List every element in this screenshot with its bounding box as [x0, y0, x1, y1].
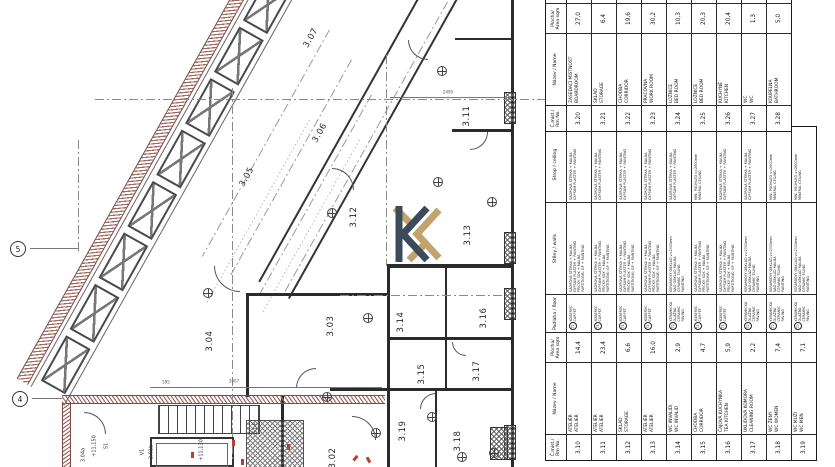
cell-floor: T1KOBEREC CARPET — [641, 294, 666, 332]
room-schedule-table-310-319: Č.míst./ Rm No.Název / NamePlocha/ Area … — [545, 126, 817, 461]
cell-sliver — [716, 0, 741, 3]
grid-axis-bubble-5: 5 — [10, 241, 26, 257]
cell-ceil: MIN. PODHLED v=2600mm MINERAL CEILING — [791, 127, 816, 202]
schedule-row-3.22: 3.22CHODBA CORRIDOR19,6 — [616, 0, 641, 131]
cell-area: 20,4 — [716, 3, 741, 33]
annotation-3.04a: 3.04a — [81, 448, 87, 462]
room-label-3.13: 3.13 — [463, 225, 473, 246]
cell-area: 2,9 — [666, 332, 691, 362]
cell-name: ATELIÉR ATELIER — [641, 362, 666, 434]
cell-sliver — [566, 0, 591, 3]
annotation-+11,130: +11,130 — [199, 439, 205, 461]
floor-symbol: T2 — [769, 323, 777, 331]
cell-sliver — [666, 0, 691, 3]
schedule-row-3.17: 3.17ÚKLIDOVÁ KOMORA CLEANING ROOM2,2T2KE… — [741, 127, 766, 460]
cell-floor: T2KERAMICKÁ DLAŽBA CERAMIC PAVING — [741, 294, 766, 332]
cell-ceil: SÁDROVÁ STĚRKA + MALBA GYPSUM PLASTER + … — [616, 127, 641, 202]
cell-rm: 3.10 — [566, 434, 591, 460]
cell-name: LOŽNICE BED ROOM — [691, 33, 716, 105]
grid-axis-bubble-4: 4 — [12, 391, 28, 407]
cell-walls: KERAMICKÝ OBKLAD v=2000mm NAD OBKLAD MAL… — [741, 202, 766, 294]
cell-area: 2,2 — [741, 332, 766, 362]
schedule-header-row: Č.míst./ Rm No.Název / NamePlocha/ Area … — [546, 0, 566, 131]
schedule-header-rm: Č.míst./ Rm No. — [546, 105, 566, 131]
cell-floor: T2KERAMICKÁ DLAŽBA CERAMIC PAVING — [766, 294, 791, 332]
floor-symbol: T1 — [594, 323, 602, 331]
cell-sliver — [641, 0, 666, 3]
cell-name: SKLAD STORAGE — [616, 362, 641, 434]
schedule-header-name: Název / Name — [546, 362, 566, 434]
cell-ceil: SÁDROVÁ STĚRKA + MALBA GYPSUM PLASTER + … — [741, 127, 766, 202]
schedule-row-3.15: 3.15CHODBA CORRIDOR4,7T1KOBEREC CARPETSÁ… — [691, 127, 716, 460]
room-label-3.18: 3.18 — [453, 431, 463, 452]
cell-name: LOŽNICE BED ROOM — [666, 33, 691, 105]
cell-name: SKLAD STORAGE — [591, 33, 616, 105]
room-label-3.16: 3.16 — [479, 308, 489, 329]
cell-walls: SÁDROVÁ STĚRKA + MALBA GYPSUM PLASTER + … — [616, 202, 641, 294]
cell-ceil: MIN. PODHLED v=2600mm MINERAL CEILING — [691, 127, 716, 202]
schedule-header-area: Plocha/ Area sqm — [546, 332, 566, 362]
cell-area: 27,0 — [566, 3, 591, 33]
cell-walls: KERAMICKÝ OBKLAD v=2000mm NAD OBKLAD MAL… — [791, 202, 816, 294]
k-logo — [389, 203, 443, 265]
floor-symbol: T1 — [694, 323, 702, 331]
cell-area: 5,9 — [716, 332, 741, 362]
cell-ceil: SÁDROVÁ STĚRKA + MALBA GYPSUM PLASTER + … — [641, 127, 666, 202]
floor-spec: KERAMICKÁ DLAŽBA CERAMIC PAVING — [769, 296, 785, 322]
cell-floor: T1KOBEREC CARPET — [716, 294, 741, 332]
schedule-row-3.24: 3.24LOŽNICE BED ROOM10,3 — [666, 0, 691, 131]
cell-sliver — [691, 0, 716, 3]
cell-rm: 3.22 — [616, 105, 641, 131]
cell-sliver — [591, 0, 616, 3]
cell-sliver — [741, 0, 766, 3]
drawing-canvas: 5 4 3.023.033.043.053.063.073.113.123.13… — [0, 0, 835, 467]
cell-name: PRACOVNA WORK ROOM — [641, 33, 666, 105]
cell-floor: T1KOBEREC CARPET — [591, 294, 616, 332]
cell-name: WC ŽENY WC WOMEN — [766, 362, 791, 434]
cell-ceil: SÁDROVÁ STĚRKA + MALBA GYPSUM PLASTER + … — [591, 127, 616, 202]
cell-name: WC WC — [741, 33, 766, 105]
cell-walls: SÁDROVÁ STĚRKA + MALBA GYPSUM PLASTER + … — [691, 202, 716, 294]
cell-rm: 3.17 — [741, 434, 766, 460]
schedule-header-area: Plocha/ Area sqm — [546, 3, 566, 33]
cell-floor: T1KOBEREC CARPET — [691, 294, 716, 332]
schedule-header-name: Název / Name — [546, 33, 566, 105]
floor-spec: KOBEREC CARPET — [694, 305, 702, 321]
cell-name: KOUPELNA BATHROOM — [766, 33, 791, 105]
dimension-3007: 3007 — [229, 379, 239, 384]
cell-name: KUCHYNĚ KITCHEN — [716, 33, 741, 105]
cell-area: 6,6 — [616, 332, 641, 362]
floor-symbol: T1 — [569, 323, 577, 331]
cell-area: 19,6 — [616, 3, 641, 33]
room-label-3.02: 3.02 — [328, 448, 338, 467]
cell-rm: 3.15 — [691, 434, 716, 460]
room-label-3.11: 3.11 — [462, 106, 472, 127]
cell-area: 6,4 — [591, 3, 616, 33]
cell-walls: SÁDROVÁ STĚRKA + MALBA GYPSUM PLASTER + … — [716, 202, 741, 294]
schedule-row-3.21: 3.21SKLAD STORAGE6,4 — [591, 0, 616, 131]
cell-walls: SÁDROVÁ STĚRKA + MALBA GYPSUM PLASTER + … — [641, 202, 666, 294]
floor-symbol: T1 — [719, 323, 727, 331]
floor-spec: KOBEREC CARPET — [569, 305, 577, 321]
cell-ceil: MIN. PODHLED v=2600mm MINERAL CEILING — [766, 127, 791, 202]
cell-name: ČAJOVÁ KUCHYŇKA TEA KITCHEN — [716, 362, 741, 434]
cell-name: CHODBA CORRIDOR — [691, 362, 716, 434]
room-label-3.12: 3.12 — [349, 207, 359, 228]
annotation-3.01b: 3.01b — [149, 445, 155, 459]
room-label-3.17: 3.17 — [472, 361, 482, 382]
room-label-3.05: 3.05 — [238, 165, 257, 188]
dimension-2490: 2490 — [443, 90, 453, 95]
floor-spec: KERAMICKÁ DLAŽBA CERAMIC PAVING — [669, 296, 685, 322]
cell-floor: T2KERAMICKÁ DLAŽBA CERAMIC PAVING — [791, 294, 816, 332]
schedule-row-3.20: 3.20ZASEDACÍ MÍSTNOST BOARDROOM27,0 — [566, 0, 591, 131]
cell-rm: 3.11 — [591, 434, 616, 460]
cell-area: 10,3 — [666, 3, 691, 33]
cell-name: ÚKLIDOVÁ KOMORA CLEANING ROOM — [741, 362, 766, 434]
cell-name: ATELIÉR ATELIER — [591, 362, 616, 434]
floor-symbol: T2 — [669, 323, 677, 331]
floor-spec: KOBEREC CARPET — [619, 305, 627, 321]
cell-area: 30,2 — [641, 3, 666, 33]
schedule-header-floor: Podlaha / floor — [546, 294, 566, 332]
cell-ceil: SÁDROVÁ STĚRKA + MALBA GYPSUM PLASTER + … — [566, 127, 591, 202]
schedule-row-3.12: 3.12SKLAD STORAGE6,6T1KOBEREC CARPETSÁDR… — [616, 127, 641, 460]
schedule-header-sliver — [546, 0, 566, 3]
schedule-row-3.23: 3.23PRACOVNA WORK ROOM30,2 — [641, 0, 666, 131]
floor-spec: KOBEREC CARPET — [644, 305, 652, 321]
schedule-row-3.13: 3.13ATELIÉR ATELIER16,0T1KOBEREC CARPETS… — [641, 127, 666, 460]
cell-name: WC INVALIDI WC INVALID — [666, 362, 691, 434]
cell-area: 4,7 — [691, 332, 716, 362]
cell-rm: 3.19 — [791, 434, 816, 460]
cell-name: ZASEDACÍ MÍSTNOST BOARDROOM — [566, 33, 591, 105]
cell-rm: 3.14 — [666, 434, 691, 460]
schedule-row-3.19: 3.19WC MUŽI WC MEN7,1T2KERAMICKÁ DLAŽBA … — [791, 127, 816, 460]
floor-spec: KERAMICKÁ DLAŽBA CERAMIC PAVING — [794, 296, 810, 322]
floor-spec: KERAMICKÁ DLAŽBA CERAMIC PAVING — [744, 296, 760, 322]
cell-area: 7,1 — [791, 332, 816, 362]
cell-name: CHODBA CORRIDOR — [616, 33, 641, 105]
cell-floor: T2KERAMICKÁ DLAŽBA CERAMIC PAVING — [666, 294, 691, 332]
room-label-3.06: 3.06 — [311, 121, 330, 144]
schedule-row-3.10: 3.10ATELIÉR ATELIER14,4T1KOBEREC CARPETS… — [566, 127, 591, 460]
cell-rm: 3.25 — [691, 105, 716, 131]
room-label-3.19: 3.19 — [398, 421, 408, 442]
room-label-3.04: 3.04 — [205, 331, 215, 352]
cell-rm: 3.28 — [766, 105, 791, 131]
cell-name: ATELIÉR ATELIER — [566, 362, 591, 434]
schedule-row-3.26: 3.26KUCHYNĚ KITCHEN20,4 — [716, 0, 741, 131]
schedule-header-rm: Č.míst./ Rm No. — [546, 434, 566, 460]
room-label-3.03: 3.03 — [326, 316, 336, 337]
cell-floor: T1KOBEREC CARPET — [566, 294, 591, 332]
cell-rm: 3.21 — [591, 105, 616, 131]
floor-symbol: T2 — [744, 323, 752, 331]
schedule-row-3.25: 3.25LOŽNICE BED ROOM20,3 — [691, 0, 716, 131]
cell-rm: 3.27 — [741, 105, 766, 131]
floor-symbol: T1 — [619, 323, 627, 331]
cell-rm: 3.18 — [766, 434, 791, 460]
cell-ceil: SÁDROVÁ STĚRKA + MALBA GYPSUM PLASTER + … — [716, 127, 741, 202]
cell-area: 16,0 — [641, 332, 666, 362]
cell-walls: SÁDROVÁ STĚRKA + MALBA GYPSUM PLASTER + … — [591, 202, 616, 294]
cell-rm: 3.12 — [616, 434, 641, 460]
cell-rm: 3.23 — [641, 105, 666, 131]
cell-floor: T1KOBEREC CARPET — [616, 294, 641, 332]
cell-rm: 3.26 — [716, 105, 741, 131]
dimension-595: 595 — [162, 380, 170, 385]
cell-walls: SÁDROVÁ STĚRKA + MALBA GYPSUM PLASTER + … — [566, 202, 591, 294]
cell-walls: KERAMICKÝ OBKLAD v=2000mm NAD OBKLAD MAL… — [666, 202, 691, 294]
cell-sliver — [616, 0, 641, 3]
schedule-row-3.14: 3.14WC INVALIDI WC INVALID2,9T2KERAMICKÁ… — [666, 127, 691, 460]
cell-rm: 3.16 — [716, 434, 741, 460]
floor-spec: KOBEREC CARPET — [594, 305, 602, 321]
cell-rm: 3.20 — [566, 105, 591, 131]
schedule-row-3.28: 3.28KOUPELNA BATHROOM5,0 — [766, 0, 791, 131]
floor-symbol: T2 — [794, 323, 802, 331]
annotation-V1: V1 — [140, 449, 146, 456]
room-schedule-table-320-328: Č.míst./ Rm No.Název / NamePlocha/ Area … — [545, 0, 792, 132]
schedule-row-3.27: 3.27WC WC1,3 — [741, 0, 766, 131]
schedule-header-walls: Stěny / walls — [546, 202, 566, 294]
cell-area: 23,4 — [591, 332, 616, 362]
room-label-3.14: 3.14 — [396, 312, 406, 333]
cell-area: 14,4 — [566, 332, 591, 362]
cell-rm: 3.13 — [641, 434, 666, 460]
cell-sliver — [766, 0, 791, 3]
annotation-S1-P: S1-P — [253, 422, 259, 433]
schedule-row-3.11: 3.11ATELIÉR ATELIER23,4T1KOBEREC CARPETS… — [591, 127, 616, 460]
floor-spec: KOBEREC CARPET — [719, 305, 727, 321]
schedule-row-3.16: 3.16ČAJOVÁ KUCHYŇKA TEA KITCHEN5,9T1KOBE… — [716, 127, 741, 460]
cell-area: 5,0 — [766, 3, 791, 33]
annotation-+11,150: +11,150 — [92, 435, 98, 457]
cell-name: WC MUŽI WC MEN — [791, 362, 816, 434]
schedule-header-row: Č.míst./ Rm No.Název / NamePlocha/ Area … — [546, 127, 566, 460]
annotation-S1: S1 — [104, 443, 110, 449]
cell-walls: KERAMICKÝ OBKLAD v=2000mm NAD OBKLAD MAL… — [766, 202, 791, 294]
cell-ceil: SÁDROVÁ STĚRKA + MALBA GYPSUM PLASTER + … — [666, 127, 691, 202]
cell-rm: 3.24 — [666, 105, 691, 131]
room-label-3.15: 3.15 — [417, 364, 427, 385]
schedule-header-ceil: Strop / ceiling — [546, 127, 566, 202]
cell-area: 1,3 — [741, 3, 766, 33]
cell-area: 7,4 — [766, 332, 791, 362]
cell-area: 20,3 — [691, 3, 716, 33]
floor-symbol: T1 — [644, 323, 652, 331]
room-label-3.07: 3.07 — [302, 26, 321, 49]
schedule-row-3.18: 3.18WC ŽENY WC WOMEN7,4T2KERAMICKÁ DLAŽB… — [766, 127, 791, 460]
